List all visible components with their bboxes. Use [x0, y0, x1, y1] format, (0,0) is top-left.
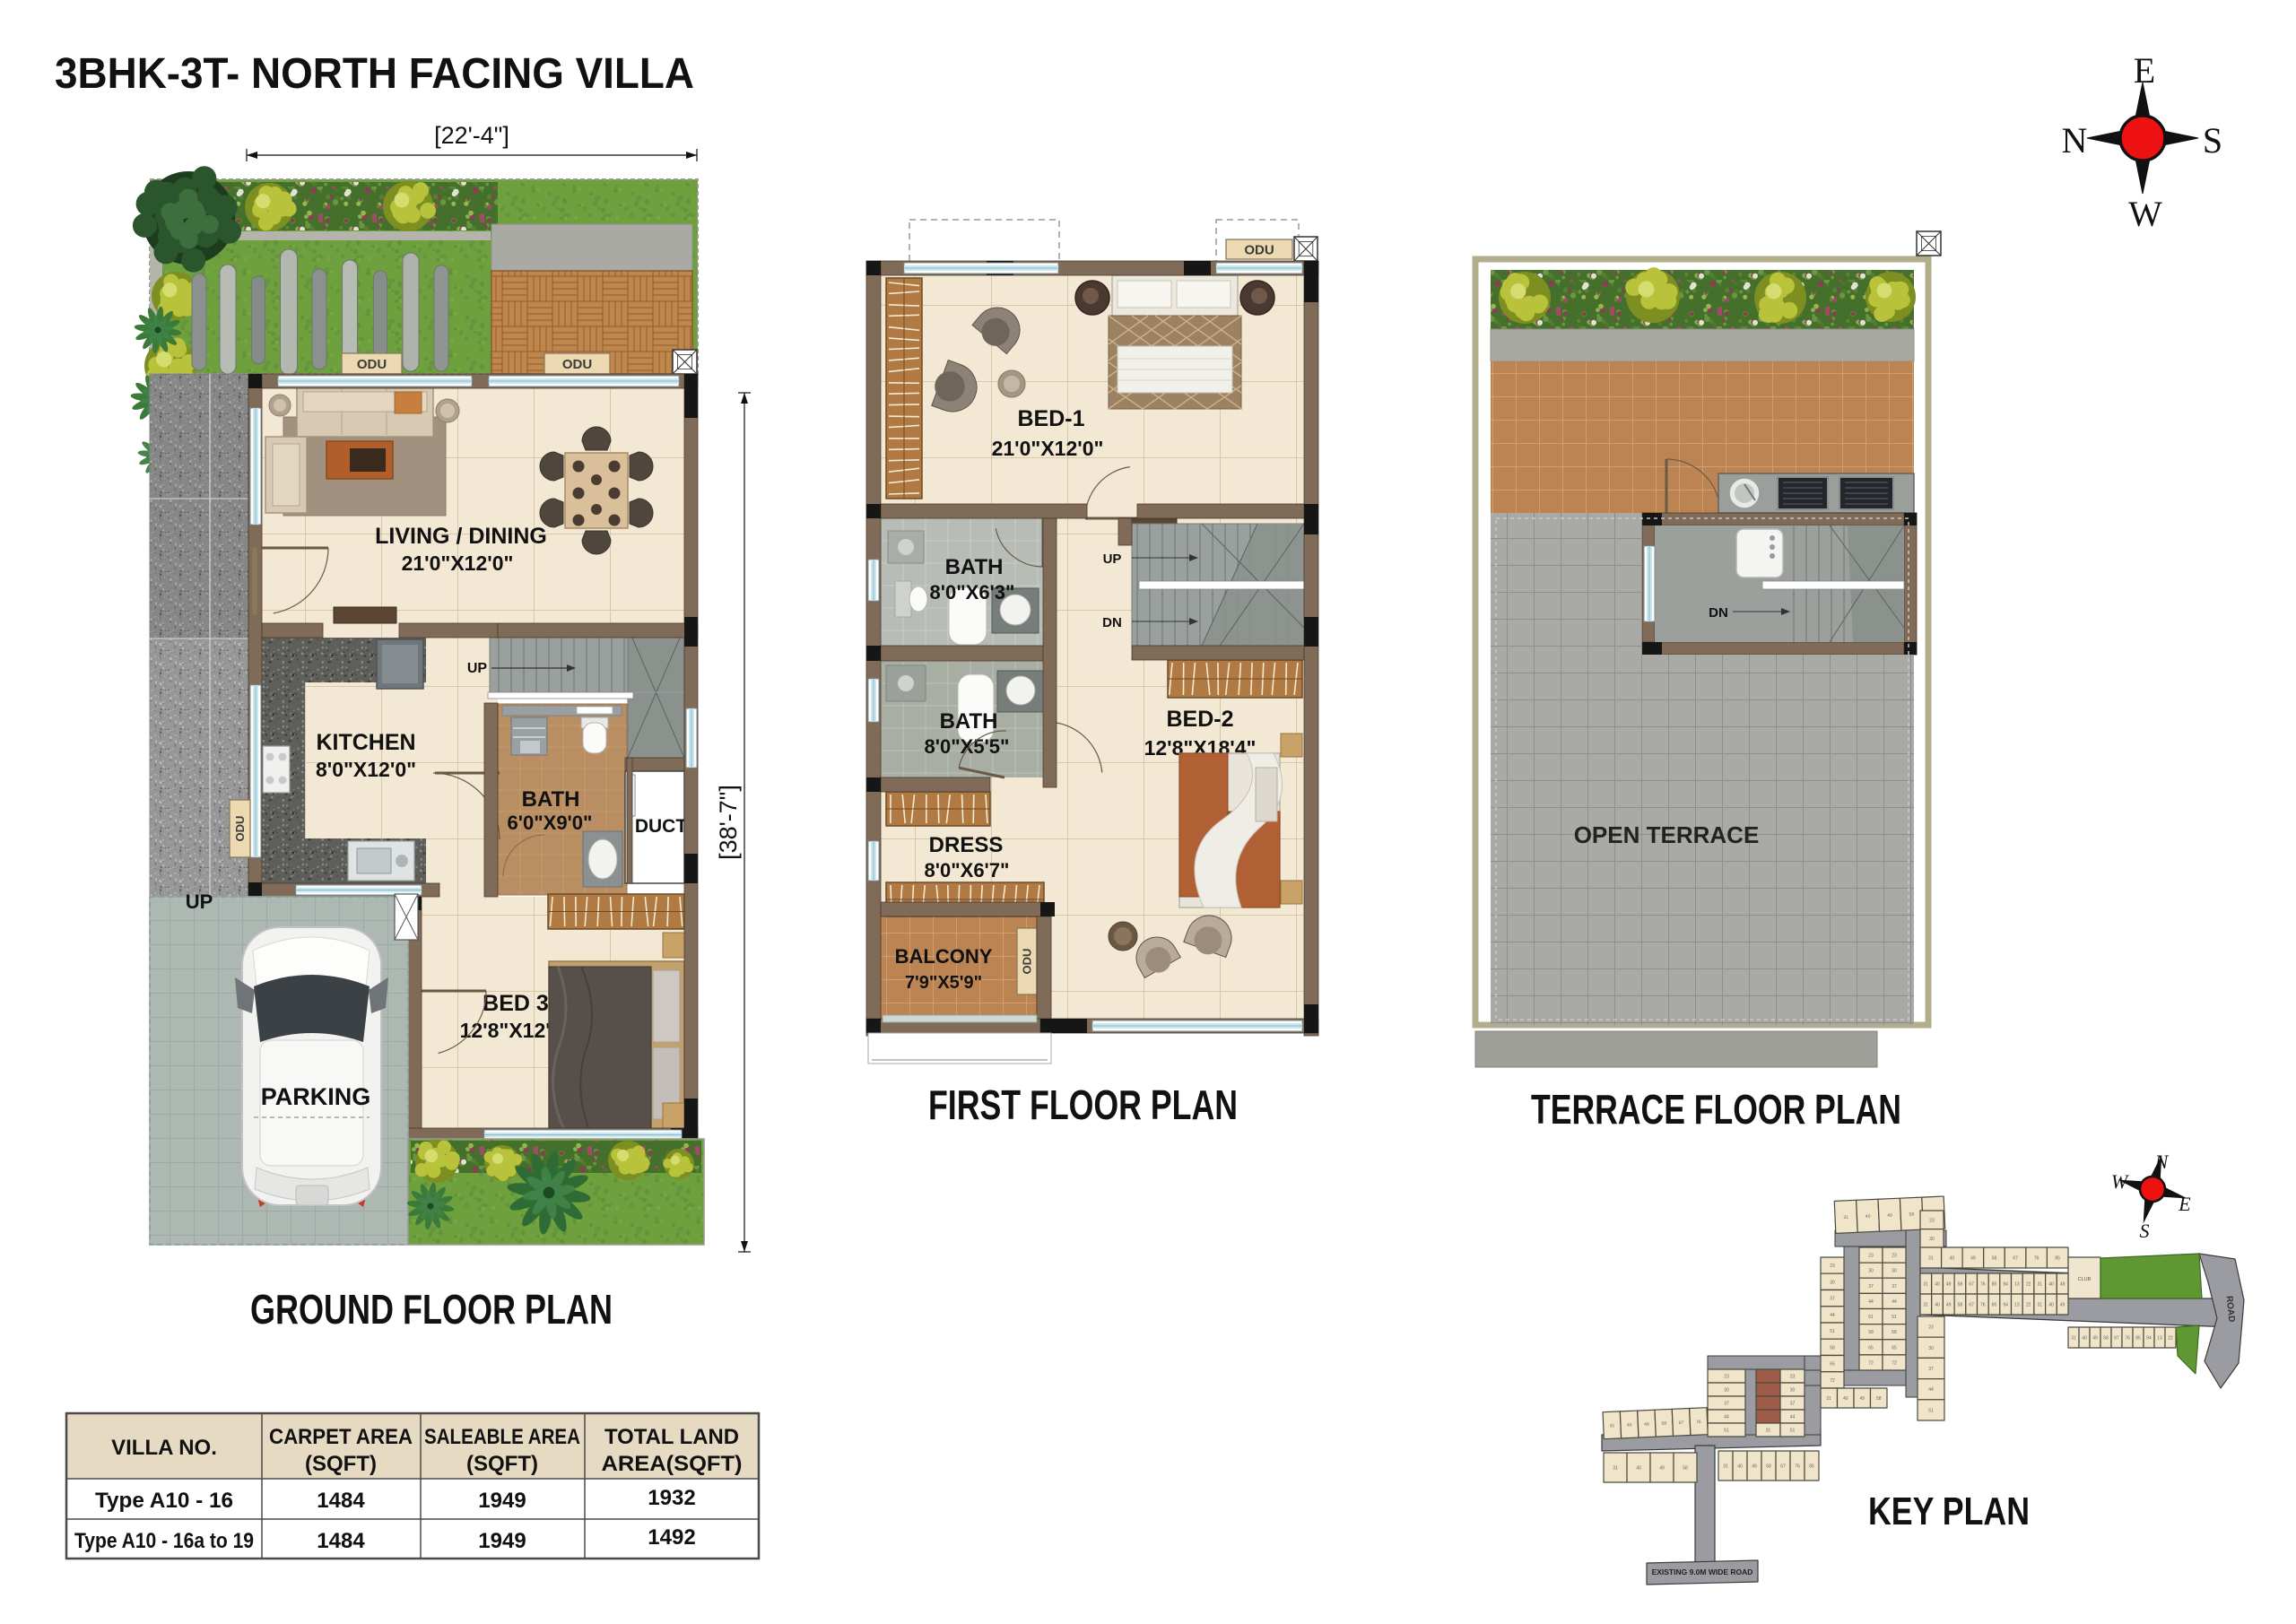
svg-text:49: 49 — [1887, 1213, 1892, 1219]
svg-text:ODU: ODU — [1244, 242, 1274, 257]
svg-text:51: 51 — [1928, 1408, 1934, 1413]
svg-text:65: 65 — [1830, 1362, 1835, 1368]
svg-text:AREA(SQFT): AREA(SQFT) — [602, 1452, 743, 1476]
svg-text:OPEN TERRACE: OPEN TERRACE — [1574, 821, 1760, 848]
svg-text:40: 40 — [2048, 1282, 2054, 1288]
svg-text:37: 37 — [1724, 1402, 1729, 1407]
svg-text:31: 31 — [1843, 1215, 1848, 1220]
svg-text:30: 30 — [1724, 1388, 1729, 1394]
svg-text:40: 40 — [1843, 1396, 1848, 1402]
svg-text:8'0"X5'5": 8'0"X5'5" — [925, 735, 1010, 758]
svg-text:49: 49 — [2060, 1303, 2066, 1308]
svg-text:DUCT: DUCT — [635, 816, 687, 837]
svg-text:49: 49 — [1946, 1303, 1952, 1308]
svg-text:65: 65 — [1892, 1345, 1897, 1350]
svg-text:PARKING: PARKING — [261, 1083, 371, 1110]
svg-text:22: 22 — [2026, 1303, 2031, 1308]
svg-text:LIVING / DINING: LIVING / DINING — [375, 524, 547, 549]
svg-text:DN: DN — [1709, 605, 1728, 621]
svg-text:51: 51 — [1724, 1429, 1729, 1434]
svg-text:6'0"X9'0": 6'0"X9'0" — [508, 812, 593, 834]
svg-text:85: 85 — [1992, 1282, 1997, 1288]
svg-text:49: 49 — [1946, 1282, 1952, 1288]
svg-text:(SQFT): (SQFT) — [466, 1452, 538, 1476]
svg-text:37: 37 — [1790, 1402, 1796, 1407]
svg-text:49: 49 — [1752, 1464, 1757, 1470]
svg-text:23: 23 — [1724, 1375, 1729, 1380]
svg-text:37: 37 — [1892, 1284, 1897, 1290]
svg-text:31: 31 — [2038, 1303, 2043, 1308]
svg-text:7'9"X5'9": 7'9"X5'9" — [905, 973, 982, 993]
svg-text:DRESS: DRESS — [929, 833, 1004, 857]
svg-text:30: 30 — [1790, 1388, 1796, 1394]
svg-text:40: 40 — [1627, 1422, 1632, 1428]
svg-text:23: 23 — [1830, 1264, 1835, 1269]
svg-text:58: 58 — [1830, 1345, 1835, 1350]
svg-text:31: 31 — [2071, 1336, 2076, 1342]
svg-text:58: 58 — [1868, 1330, 1874, 1335]
svg-text:58: 58 — [1661, 1421, 1666, 1427]
svg-text:58: 58 — [1766, 1464, 1771, 1470]
svg-text:ODU: ODU — [1021, 949, 1034, 975]
svg-text:40: 40 — [1636, 1466, 1641, 1472]
svg-text:58: 58 — [1892, 1330, 1897, 1335]
svg-text:BALCONY: BALCONY — [895, 945, 993, 968]
svg-text:72: 72 — [1868, 1360, 1874, 1366]
svg-text:58: 58 — [2103, 1336, 2109, 1342]
svg-text:1949: 1949 — [478, 1529, 526, 1553]
svg-text:85: 85 — [2135, 1336, 2141, 1342]
svg-text:8'0"X12'0": 8'0"X12'0" — [316, 758, 416, 781]
svg-text:1484: 1484 — [317, 1529, 365, 1553]
svg-text:13: 13 — [2014, 1282, 2020, 1288]
svg-text:GROUND FLOOR PLAN: GROUND FLOOR PLAN — [250, 1286, 613, 1333]
svg-text:8'0"X6'3": 8'0"X6'3" — [930, 581, 1015, 604]
svg-text:49: 49 — [1970, 1256, 1976, 1262]
svg-text:67: 67 — [1780, 1464, 1786, 1470]
svg-text:SALEABLE AREA: SALEABLE AREA — [424, 1425, 580, 1449]
svg-text:1484: 1484 — [317, 1489, 365, 1513]
svg-text:67: 67 — [1679, 1420, 1684, 1426]
svg-text:58: 58 — [1992, 1256, 1997, 1262]
svg-text:72: 72 — [1830, 1378, 1835, 1384]
svg-text:30: 30 — [1892, 1269, 1897, 1274]
svg-text:40: 40 — [1935, 1303, 1940, 1308]
svg-text:49: 49 — [1859, 1396, 1865, 1402]
svg-text:3BHK-3T- NORTH FACING VILLA: 3BHK-3T- NORTH FACING VILLA — [55, 50, 694, 98]
svg-text:Type A10 - 16a to 19: Type A10 - 16a to 19 — [74, 1529, 254, 1553]
svg-text:TOTAL LAND: TOTAL LAND — [604, 1425, 739, 1449]
svg-text:BED 3: BED 3 — [483, 991, 549, 1016]
svg-text:58: 58 — [1683, 1466, 1688, 1472]
svg-text:94: 94 — [2003, 1303, 2008, 1308]
svg-text:W: W — [2111, 1170, 2129, 1193]
svg-text:UP: UP — [467, 661, 488, 676]
svg-text:CLUB: CLUB — [2078, 1277, 2092, 1282]
svg-text:KITCHEN: KITCHEN — [316, 730, 415, 755]
svg-text:37: 37 — [1928, 1367, 1934, 1372]
svg-text:BED-1: BED-1 — [1017, 406, 1084, 431]
svg-text:49: 49 — [2092, 1336, 2098, 1342]
svg-text:BED-2: BED-2 — [1166, 707, 1233, 732]
svg-text:51: 51 — [1830, 1329, 1835, 1334]
svg-text:85: 85 — [1809, 1464, 1814, 1470]
svg-text:37: 37 — [1830, 1297, 1835, 1302]
svg-text:44: 44 — [1790, 1415, 1796, 1420]
svg-text:BATH: BATH — [522, 787, 580, 812]
svg-text:85: 85 — [1992, 1303, 1997, 1308]
svg-text:23: 23 — [1928, 1325, 1934, 1331]
svg-text:76: 76 — [2125, 1336, 2130, 1342]
svg-text:TERRACE FLOOR PLAN: TERRACE FLOOR PLAN — [1531, 1086, 1901, 1133]
svg-text:44: 44 — [1830, 1313, 1835, 1318]
svg-text:22: 22 — [2026, 1282, 2031, 1288]
svg-text:23: 23 — [1892, 1254, 1897, 1259]
svg-text:UP: UP — [1103, 551, 1122, 567]
svg-text:31: 31 — [2038, 1282, 2043, 1288]
svg-text:1932: 1932 — [648, 1486, 695, 1510]
svg-text:67: 67 — [2114, 1336, 2119, 1342]
svg-text:KEY PLAN: KEY PLAN — [1868, 1489, 2030, 1533]
svg-text:13: 13 — [2157, 1336, 2162, 1342]
svg-text:E: E — [2178, 1193, 2191, 1215]
svg-text:N: N — [2062, 120, 2088, 161]
svg-text:76: 76 — [2034, 1256, 2039, 1262]
svg-text:FIRST FLOOR PLAN: FIRST FLOOR PLAN — [928, 1081, 1238, 1128]
svg-text:EXISTING 9.0M WIDE ROAD: EXISTING 9.0M WIDE ROAD — [1652, 1568, 1753, 1576]
svg-text:51: 51 — [1868, 1315, 1874, 1320]
svg-text:13: 13 — [2014, 1303, 2020, 1308]
svg-text:44: 44 — [1868, 1299, 1874, 1305]
svg-text:BATH: BATH — [940, 709, 998, 734]
svg-text:49: 49 — [1644, 1421, 1649, 1427]
svg-text:E: E — [2134, 50, 2155, 91]
svg-text:44: 44 — [1724, 1415, 1729, 1420]
svg-text:65: 65 — [1868, 1345, 1874, 1350]
svg-text:31: 31 — [1610, 1423, 1615, 1429]
svg-text:31: 31 — [1723, 1464, 1728, 1470]
svg-text:58: 58 — [1958, 1282, 1963, 1288]
svg-text:[22'-4"]: [22'-4"] — [434, 122, 509, 149]
svg-text:31: 31 — [1826, 1396, 1831, 1402]
svg-text:40: 40 — [2082, 1336, 2087, 1342]
svg-text:S: S — [2140, 1220, 2150, 1242]
svg-text:31: 31 — [1924, 1282, 1929, 1288]
svg-text:21'0"X12'0": 21'0"X12'0" — [402, 551, 514, 575]
svg-text:23: 23 — [1790, 1375, 1796, 1380]
svg-text:BATH: BATH — [945, 555, 1004, 579]
svg-text:40: 40 — [1865, 1214, 1871, 1220]
svg-text:23: 23 — [1929, 1218, 1935, 1223]
svg-text:S: S — [2203, 120, 2222, 161]
svg-text:30: 30 — [1830, 1280, 1835, 1285]
svg-text:67: 67 — [1969, 1303, 1974, 1308]
svg-text:8'0"X6'7": 8'0"X6'7" — [925, 859, 1010, 881]
svg-text:21'0"X12'0": 21'0"X12'0" — [992, 437, 1104, 460]
svg-text:40: 40 — [1737, 1464, 1743, 1470]
svg-text:31: 31 — [1766, 1429, 1771, 1434]
svg-text:58: 58 — [1958, 1303, 1963, 1308]
svg-text:37: 37 — [1868, 1284, 1874, 1290]
svg-text:72: 72 — [1892, 1360, 1897, 1366]
svg-text:23: 23 — [1868, 1254, 1874, 1259]
svg-text:30: 30 — [1928, 1346, 1934, 1351]
svg-text:VILLA NO.: VILLA NO. — [111, 1436, 217, 1460]
svg-text:ODU: ODU — [233, 816, 247, 842]
svg-text:1492: 1492 — [648, 1525, 695, 1550]
svg-text:51: 51 — [1892, 1315, 1897, 1320]
svg-text:49: 49 — [2060, 1282, 2066, 1288]
svg-text:DN: DN — [1102, 615, 1122, 630]
svg-text:ODU: ODU — [357, 357, 387, 372]
svg-text:76: 76 — [1980, 1282, 1986, 1288]
svg-text:85: 85 — [2055, 1256, 2060, 1262]
svg-text:58: 58 — [1876, 1396, 1882, 1402]
svg-text:(SQFT): (SQFT) — [305, 1452, 377, 1476]
svg-text:[38'-7"]: [38'-7"] — [715, 785, 742, 860]
svg-text:40: 40 — [1935, 1282, 1940, 1288]
svg-text:76: 76 — [1696, 1420, 1701, 1425]
svg-text:94: 94 — [2146, 1336, 2152, 1342]
svg-text:1949: 1949 — [478, 1489, 526, 1513]
svg-text:51: 51 — [1790, 1429, 1796, 1434]
svg-text:31: 31 — [1613, 1466, 1618, 1472]
svg-text:94: 94 — [2003, 1282, 2008, 1288]
svg-text:W: W — [2128, 194, 2162, 234]
svg-text:58: 58 — [1909, 1212, 1915, 1218]
svg-text:44: 44 — [1928, 1387, 1934, 1393]
svg-text:31: 31 — [1928, 1256, 1934, 1262]
svg-text:30: 30 — [1868, 1269, 1874, 1274]
svg-text:67: 67 — [1969, 1282, 1974, 1288]
svg-text:40: 40 — [1950, 1256, 1955, 1262]
svg-text:N: N — [2154, 1151, 2170, 1173]
svg-text:31: 31 — [1924, 1303, 1929, 1308]
svg-text:30: 30 — [1929, 1237, 1935, 1242]
svg-text:CARPET AREA: CARPET AREA — [269, 1425, 413, 1449]
svg-text:40: 40 — [2048, 1303, 2054, 1308]
svg-text:76: 76 — [1795, 1464, 1800, 1470]
svg-text:ODU: ODU — [562, 357, 592, 372]
svg-text:76: 76 — [1980, 1303, 1986, 1308]
svg-text:67: 67 — [2013, 1256, 2018, 1262]
svg-text:44: 44 — [1892, 1299, 1897, 1305]
svg-text:49: 49 — [1659, 1466, 1665, 1472]
svg-text:UP: UP — [186, 890, 213, 913]
svg-text:22: 22 — [2168, 1336, 2173, 1342]
svg-text:Type A10 - 16: Type A10 - 16 — [95, 1489, 233, 1513]
